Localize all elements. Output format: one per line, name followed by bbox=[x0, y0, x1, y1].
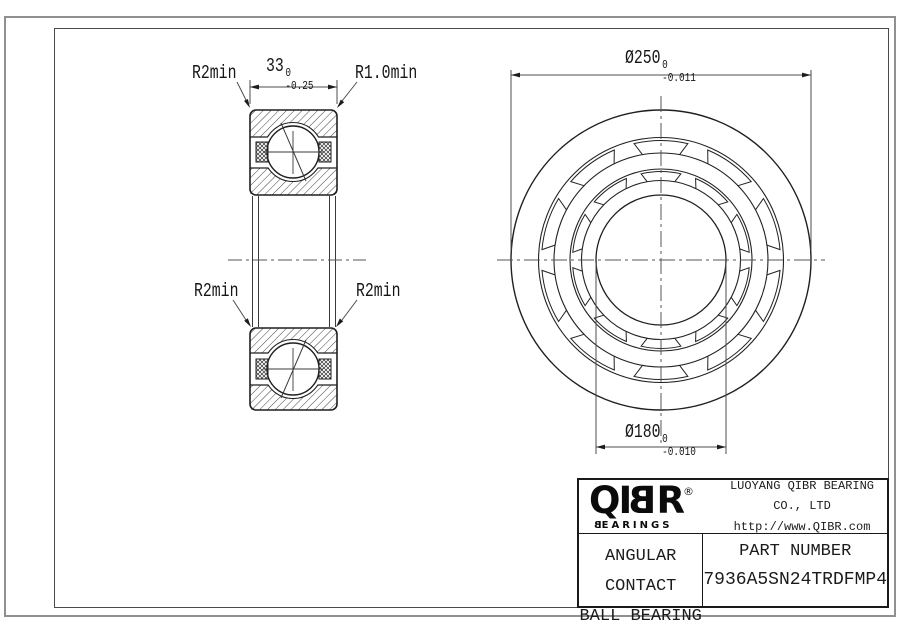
part-number-value: 7936A5SN24TRDFMP4 bbox=[703, 565, 887, 597]
diameter-symbol: Ø bbox=[625, 47, 634, 69]
dim-outer-diameter: Ø2500-0.011 bbox=[625, 47, 716, 84]
label-r2min-top: R2min bbox=[192, 62, 249, 84]
label-r2min-mid-left: R2min bbox=[194, 280, 251, 302]
engineering-drawing-page: { "drawing": { "labels": { "r2min_top": … bbox=[0, 0, 900, 636]
dim-width: 330-0.25 bbox=[266, 55, 327, 92]
inner-ring-bottom-hatch bbox=[250, 328, 337, 353]
logo-subtext: BEARINGS bbox=[591, 521, 717, 531]
product-type-cell: ANGULAR CONTACT BALL BEARING bbox=[579, 534, 703, 607]
outer-ring-top-hatch bbox=[250, 110, 337, 137]
part-number-label: PART NUMBER bbox=[703, 538, 887, 565]
title-block-detail-row: ANGULAR CONTACT BALL BEARING PART NUMBER… bbox=[579, 534, 887, 607]
company-logo: QIBR® BEARINGS bbox=[579, 482, 717, 531]
product-type-line2: BALL BEARING bbox=[579, 602, 702, 632]
title-block: QIBR® BEARINGS LUOYANG QIBR BEARING CO.,… bbox=[577, 478, 889, 608]
label-r2min-mid-right: R2min bbox=[356, 280, 413, 302]
dim-width-value: 33 bbox=[266, 55, 284, 77]
outer-ring-bottom-hatch bbox=[250, 385, 337, 410]
section-view bbox=[228, 110, 366, 410]
label-r1min-top: R1.0min bbox=[355, 62, 435, 84]
diameter-symbol: Ø bbox=[625, 421, 634, 443]
logo-wordmark: QIBR bbox=[589, 479, 683, 522]
dim-bore-diameter: Ø1800-0.010 bbox=[625, 421, 716, 458]
registered-trademark-symbol: ® bbox=[683, 485, 694, 498]
part-number-cell: PART NUMBER 7936A5SN24TRDFMP4 bbox=[703, 534, 887, 607]
company-info: LUOYANG QIBR BEARING CO., LTD http://www… bbox=[717, 476, 887, 537]
company-name: LUOYANG QIBR BEARING CO., LTD bbox=[717, 476, 887, 517]
title-block-header-row: QIBR® BEARINGS LUOYANG QIBR BEARING CO.,… bbox=[579, 480, 887, 534]
front-view bbox=[497, 96, 825, 444]
product-type-line1: ANGULAR CONTACT bbox=[579, 542, 702, 602]
